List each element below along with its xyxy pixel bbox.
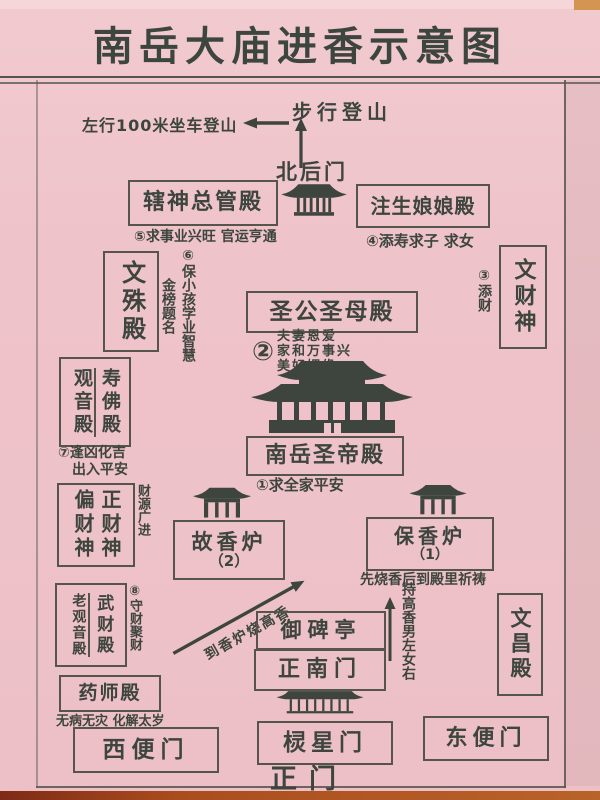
note-shengdi: ①求全家平安 [256, 474, 344, 495]
hall-box-shenggongshengmu: 圣公圣母殿 [246, 291, 418, 333]
hall-label: 西便门 [103, 738, 190, 762]
long-gate-icon [272, 686, 368, 720]
hall-label: 御碑亭 [281, 619, 362, 641]
note-hold-incense: 持高香男左女右 [398, 582, 418, 710]
main-gate-label: 正门 [270, 757, 348, 796]
hall-label-right: 武财殿 [93, 594, 111, 657]
temple-map-photo: 南岳大庙进香示意图 步行登山 左行100米坐车登山 北后门 辖神总管殿 ⑤求事业… [0, 0, 600, 800]
hall-label: 注生娘娘殿 [371, 196, 476, 217]
note-line: ⑦逢凶化吉 [58, 445, 128, 462]
hall-label: 东便门 [445, 727, 526, 750]
hall-box-laoguanyin-wucai: 老观音殿 武财殿 [55, 583, 127, 667]
hall-box-dongbianmen: 东便门 [423, 716, 549, 761]
hall-box-xiashen: 辖神总管殿 [128, 180, 278, 226]
note-guanyin: ⑦逢凶化吉 出入平安 [58, 445, 128, 479]
left-arrow [243, 117, 289, 129]
hall-label-left: 观音殿 [71, 368, 96, 437]
hall-label: 圣公圣母殿 [270, 300, 395, 324]
pavilion-icon [278, 180, 350, 220]
note-zhusheng: ④添寿求子 求女 [366, 230, 474, 251]
hall-box-zhengnanmen: 正南门 [254, 649, 386, 691]
note-line: 夫妻恩爱 [277, 330, 352, 345]
hall-label-right: 寿佛殿 [99, 368, 119, 437]
note-xiashen: ⑤求事业兴旺 官运亨通 [134, 226, 277, 246]
hall-label: 故香炉 [192, 531, 267, 553]
hall-box-shengdi: 南岳圣帝殿 [246, 436, 404, 476]
archway-icon-left [186, 485, 258, 521]
hall-box-gu-xianglu: 故香炉 （2） [173, 520, 285, 580]
note-laoguanyin: ⑧守财聚财 [125, 584, 144, 660]
paper-top-edge [0, 0, 600, 9]
hall-label: 文殊殿 [118, 260, 143, 344]
note-line: 出入平安 [58, 462, 128, 479]
note-caiyuan: 财源广进 [133, 484, 152, 554]
hall-label: 保香炉 [394, 526, 466, 547]
hall-box-bao-xianglu: 保香炉 （1） [366, 517, 494, 571]
hall-label: 南岳圣帝殿 [265, 444, 385, 467]
hall-box-yaoshi: 药师殿 [59, 675, 161, 712]
hall-box-xibianmen: 西便门 [73, 727, 219, 773]
page-title: 南岳大庙进香示意图 [0, 14, 600, 72]
note-col: 金榜题名 [158, 248, 178, 373]
hall-label: 棂星门 [283, 731, 367, 755]
hall-number: （2） [209, 554, 249, 570]
hall-number: （1） [411, 548, 449, 563]
frame-left [36, 80, 38, 788]
note-wencaishen: ③添财 [474, 268, 494, 338]
hall-label: 文财神 [511, 258, 534, 336]
hall-box-piancai-zhengcai: 偏财神 正财神 [57, 483, 135, 567]
hall-label-left: 老观音殿 [71, 593, 91, 657]
hall-box-guanyin-shoufo: 观音殿 寿佛殿 [59, 357, 131, 447]
ride-up-label: 左行100米坐车登山 [82, 112, 237, 136]
archway-icon-right [404, 482, 472, 518]
hall-box-wencaishen: 文财神 [499, 245, 547, 349]
title-divider [0, 76, 600, 84]
hall-box-yubeiting: 御碑亭 [256, 611, 386, 650]
note-bao-xianglu: 先烧香后到殿里祈祷 [360, 569, 486, 589]
note-wenshu: ⑥保小孩学业智慧 金榜题名 [158, 248, 198, 373]
hall-label: 文昌殿 [509, 607, 531, 682]
hall-box-wenshu: 文殊殿 [103, 251, 159, 352]
paper-right-shade [566, 80, 600, 786]
hall-label: 正南门 [278, 658, 362, 681]
hall-label-right: 正财神 [99, 489, 120, 561]
hall-box-wenchang: 文昌殿 [497, 593, 543, 696]
hall-label: 辖神总管殿 [143, 191, 263, 214]
palace-icon [246, 357, 418, 437]
background-top-right-corner [574, 0, 600, 10]
note-col: ⑥保小孩学业智慧 [178, 248, 198, 373]
incense-up-arrow [384, 597, 396, 661]
hall-label: 药师殿 [78, 684, 141, 704]
frame-right [564, 80, 566, 788]
hall-box-zhusheng: 注生娘娘殿 [356, 184, 490, 228]
hall-label-left: 偏财神 [72, 489, 93, 561]
